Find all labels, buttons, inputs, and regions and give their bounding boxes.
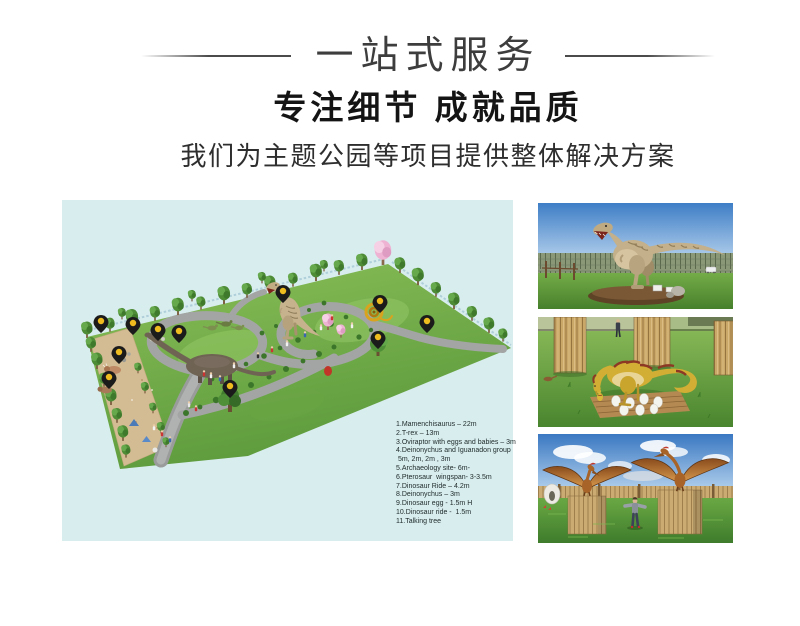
right-tower	[658, 490, 702, 534]
banner: 一站式服务	[28, 34, 800, 78]
page-title: 专注细节 成就品质	[28, 88, 800, 128]
legend-line: 5m, 2m, 2m , 3m	[396, 456, 514, 465]
left-tower	[568, 496, 606, 534]
photo-pterosaurs	[538, 434, 733, 543]
background-fence	[538, 486, 733, 498]
legend-line: 3.Oviraptor with eggs and babies – 3m	[396, 439, 514, 448]
photo-pterosaurs-illustration	[538, 434, 733, 543]
post-shadow	[553, 371, 587, 377]
banner-title: 一站式服务	[315, 34, 540, 78]
park-plan-image: 1.Mamenchisaurus – 22m 2.T-rex – 13m 3.O…	[62, 200, 513, 541]
divider-right	[565, 55, 715, 57]
page-subtitle: 我们为主题公园等项目提供整体解决方案	[28, 140, 800, 172]
legend-line: 8.Deinonychus – 3m	[396, 491, 514, 500]
legend-line: 6.Pterosaur wingspan- 3-3.5m	[396, 474, 514, 483]
legend-line: 9.Dinosaur egg - 1.5m H	[396, 500, 514, 509]
photo-trex	[538, 203, 733, 309]
legend-line: 11.Talking tree	[396, 518, 514, 527]
legend-line: 7.Dinosaur Ride – 4.2m	[396, 483, 514, 492]
map-legend: 1.Mamenchisaurus – 22m 2.T-rex – 13m 3.O…	[396, 421, 514, 527]
photo-dinosaur-eggs-illustration	[538, 317, 733, 427]
legend-line: 1.Mamenchisaurus – 22m	[396, 421, 514, 430]
red-bush	[324, 366, 332, 376]
photo-trex-illustration	[538, 203, 733, 309]
legend-line: 4.Deinonychus and Iguanadon group	[396, 447, 514, 456]
divider-left	[141, 55, 291, 57]
legend-line: 2.T-rex – 13m	[396, 430, 514, 439]
page: 一站式服务 专注细节 成就品质 我们为主题公园等项目提供整体解决方案	[0, 0, 800, 626]
photo-dinosaur-eggs	[538, 317, 733, 427]
legend-line: 10.Dinosaur ride - 1.5m	[396, 509, 514, 518]
legend-line: 5.Archaeology site- 6m-	[396, 465, 514, 474]
